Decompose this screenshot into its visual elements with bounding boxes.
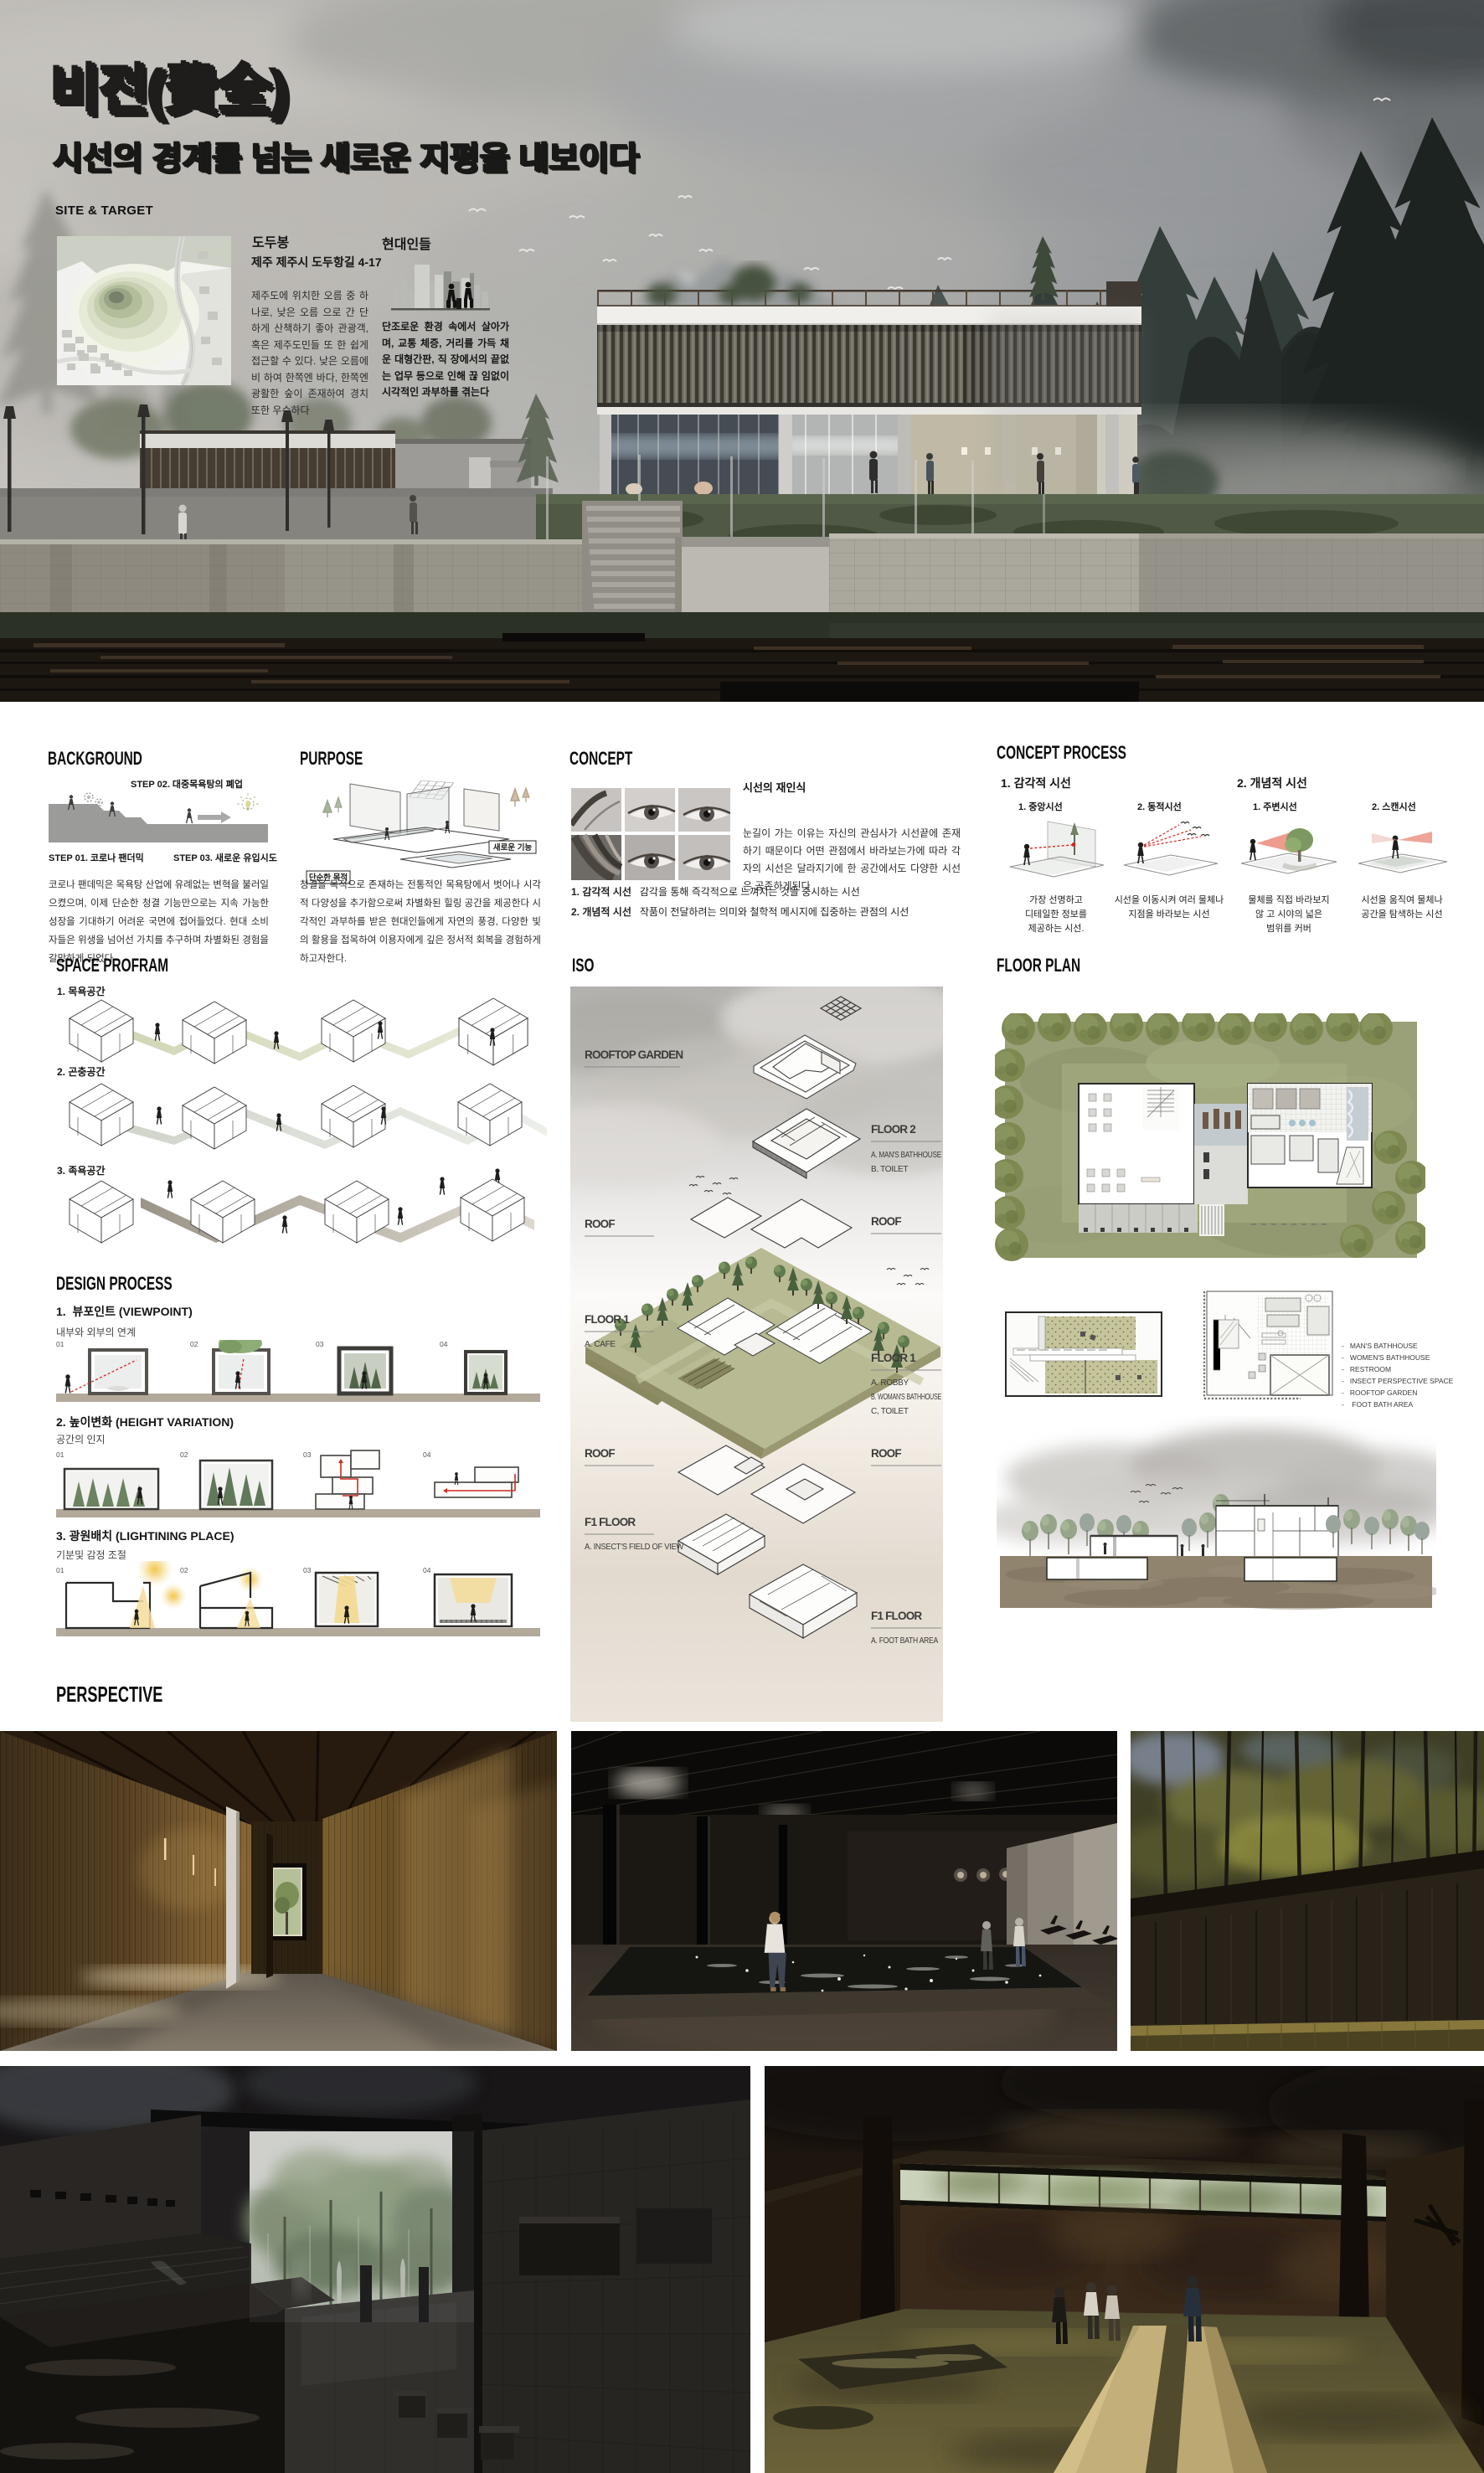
svg-text:새로운 기능: 새로운 기능 (493, 842, 533, 853)
svg-text:1. 목욕공간: 1. 목욕공간 (57, 985, 106, 997)
svg-text:C, TOILET: C, TOILET (871, 1407, 909, 1416)
svg-text:04: 04 (423, 1566, 431, 1574)
svg-text:ROOF: ROOF (871, 1447, 901, 1460)
svg-text:FLOOR 1: FLOOR 1 (871, 1352, 916, 1364)
svg-text:B. WOMAN'S BATHHOUSE: B. WOMAN'S BATHHOUSE (871, 1393, 941, 1402)
svg-text:A. FOOT BATH AREA: A. FOOT BATH AREA (871, 1636, 939, 1646)
svg-text:3. 족욕공간: 3. 족욕공간 (57, 1164, 106, 1177)
svg-text:A. ROBBY: A. ROBBY (871, 1378, 909, 1388)
svg-text:02: 02 (180, 1566, 188, 1574)
svg-text:02: 02 (180, 1450, 188, 1459)
svg-text:ROOF: ROOF (585, 1218, 615, 1230)
svg-text:01: 01 (56, 1566, 64, 1574)
svg-text:03: 03 (303, 1566, 312, 1574)
svg-text:2. 곤충공간: 2. 곤충공간 (57, 1065, 106, 1078)
svg-text:FLOOR 1: FLOOR 1 (585, 1313, 630, 1326)
svg-text:04: 04 (440, 1340, 448, 1348)
svg-text:A. INSECT'S FIELD OF VIEW: A. INSECT'S FIELD OF VIEW (585, 1543, 684, 1552)
svg-text:01: 01 (56, 1340, 64, 1348)
svg-text:02: 02 (190, 1340, 198, 1348)
svg-text:01: 01 (56, 1450, 64, 1459)
svg-text:03: 03 (316, 1340, 324, 1348)
svg-text:A. MAN'S BATHHOUSE: A. MAN'S BATHHOUSE (871, 1151, 942, 1160)
svg-text:F1 FLOOR: F1 FLOOR (585, 1516, 636, 1528)
svg-text:03: 03 (303, 1450, 312, 1459)
svg-text:ROOF: ROOF (871, 1215, 901, 1228)
svg-text:04: 04 (423, 1450, 431, 1459)
svg-text:ROOFTOP GARDEN: ROOFTOP GARDEN (585, 1048, 683, 1061)
svg-text:A. CAFE: A. CAFE (585, 1340, 616, 1349)
svg-text:F1 FLOOR: F1 FLOOR (871, 1610, 922, 1622)
svg-text:FLOOR 2: FLOOR 2 (871, 1123, 915, 1136)
svg-text:B. TOILET: B. TOILET (871, 1165, 908, 1174)
svg-text:ROOF: ROOF (585, 1447, 615, 1460)
